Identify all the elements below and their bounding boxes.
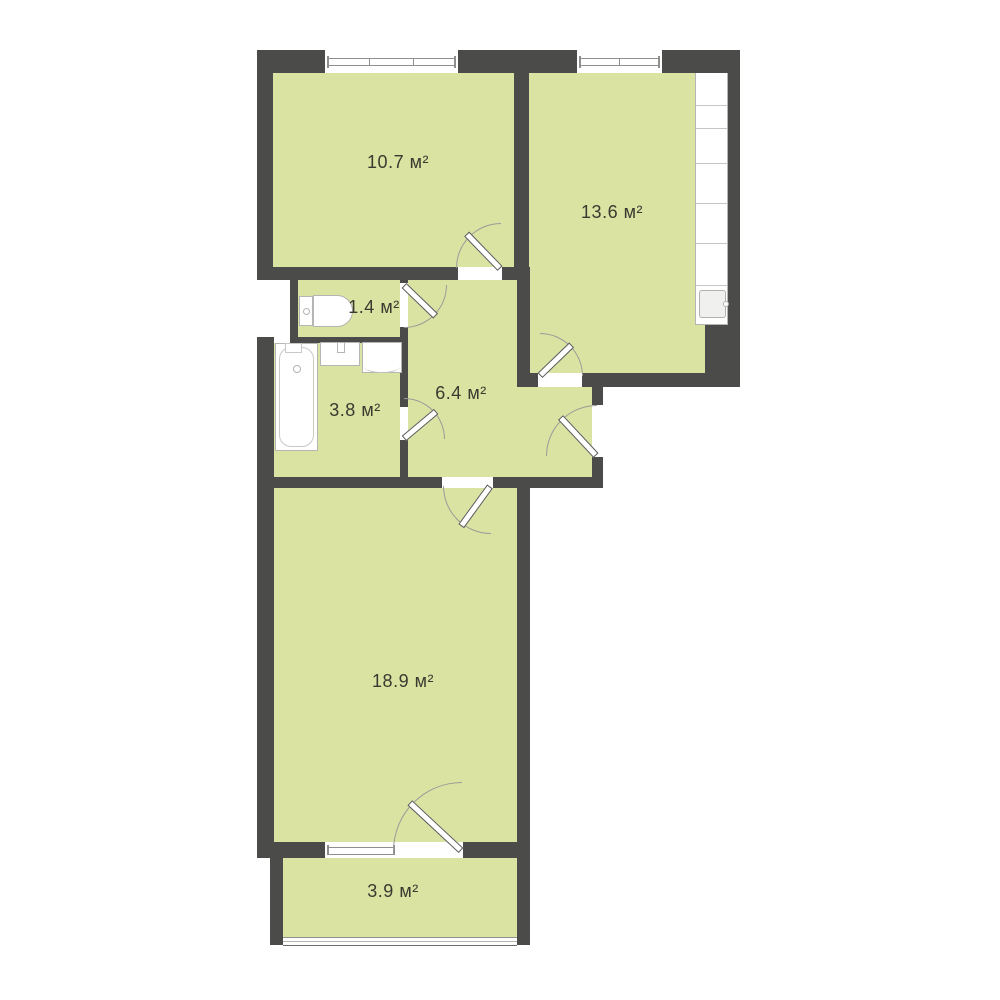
living-area-label: 18.9 м² xyxy=(333,671,473,692)
wall xyxy=(517,858,530,945)
wall xyxy=(517,477,530,842)
wall xyxy=(517,267,530,377)
floor-plan: 10.7 м² 13.6 м² 1.4 м² 3.8 м² 6.4 м² 18.… xyxy=(0,0,1000,1000)
wall xyxy=(290,277,298,342)
kitchen-window xyxy=(577,50,662,73)
balcony-glazing xyxy=(283,937,517,946)
kitchen-area-label: 13.6 м² xyxy=(542,202,682,223)
washing-machine-icon xyxy=(362,342,402,373)
wall xyxy=(257,50,273,277)
balcony-area-label: 3.9 м² xyxy=(323,881,463,902)
hallway-area-label: 6.4 м² xyxy=(391,383,531,404)
wall xyxy=(257,477,603,488)
wall xyxy=(514,50,529,267)
wash-basin-icon xyxy=(320,342,360,366)
room-living xyxy=(273,488,517,842)
wall xyxy=(270,858,283,945)
bedroom-area-label: 10.7 м² xyxy=(328,152,468,173)
bedroom-window xyxy=(325,50,458,73)
wall xyxy=(257,337,274,858)
living-room-window xyxy=(325,842,397,858)
wc-area-label: 1.4 м² xyxy=(304,297,444,318)
kitchen-counter xyxy=(695,73,728,325)
wall xyxy=(705,325,740,387)
bathtub-icon xyxy=(275,343,318,451)
kitchen-sink-icon xyxy=(699,290,726,318)
